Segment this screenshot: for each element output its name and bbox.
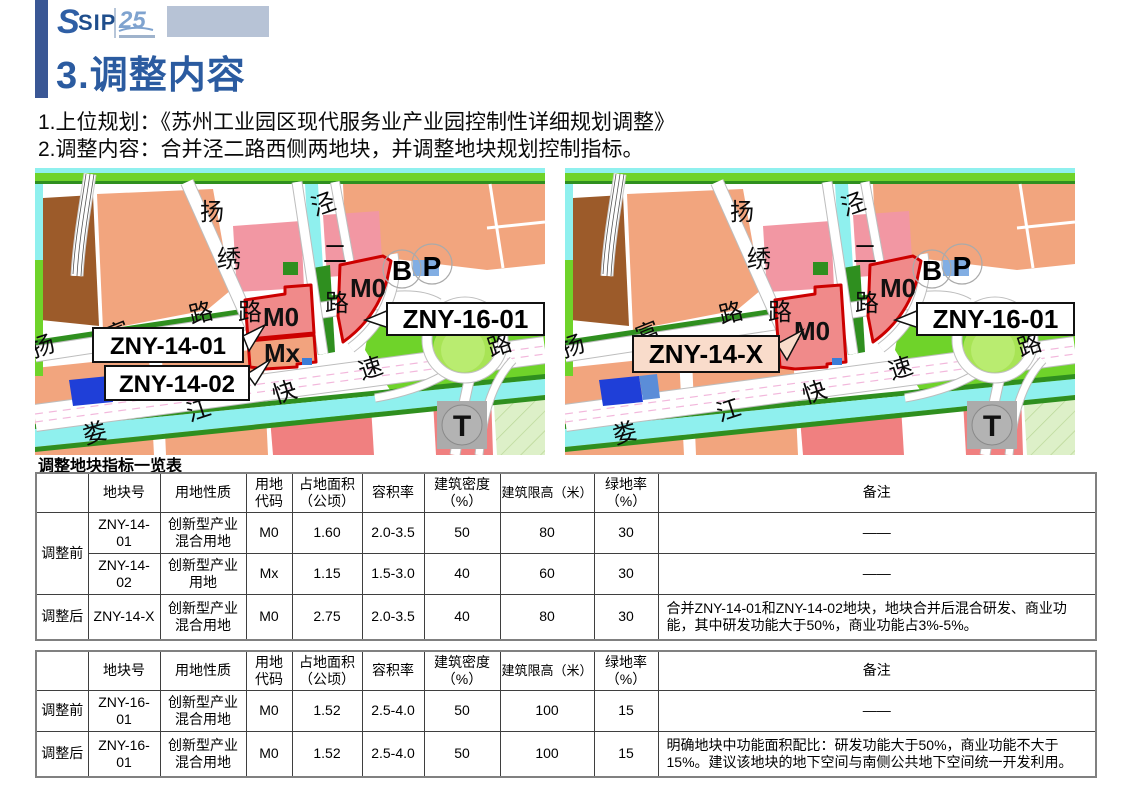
map-callout-ZNY-16-01: ZNY-16-01 <box>895 303 1074 335</box>
svg-text:ZNY-16-01: ZNY-16-01 <box>933 304 1059 334</box>
svg-text:ZNY-14-02: ZNY-14-02 <box>119 371 235 398</box>
parking-icon: P <box>953 251 972 282</box>
data-cell: 1.52 <box>292 691 362 732</box>
road-label-char: 路 <box>238 299 262 326</box>
data-cell: 创新型产业混合用地 <box>160 595 246 641</box>
column-header: 建筑限高（米） <box>500 473 594 513</box>
data-cell: 30 <box>594 554 658 595</box>
sip-swoosh-icon: S <box>57 3 80 41</box>
data-cell: 50 <box>424 691 500 732</box>
column-header: 占地面积（公顷） <box>292 473 362 513</box>
road-label-char: 扬 <box>730 199 754 226</box>
table-row: 调整前ZNY-16-01创新型产业混合用地M01.522.5-4.0501001… <box>36 691 1096 732</box>
svg-text:ZNY-14-X: ZNY-14-X <box>649 339 764 369</box>
indicator-table-zny14: 地块号用地性质用地代码占地面积（公顷）容积率建筑密度（%）建筑限高（米）绿地率（… <box>35 472 1097 641</box>
road-label-char: 绣 <box>747 246 771 273</box>
data-cell: 60 <box>500 554 594 595</box>
table-row: 调整后ZNY-16-01创新型产业混合用地M01.522.5-4.0501001… <box>36 732 1096 778</box>
data-cell: 2.75 <box>292 595 362 641</box>
road-label-char: 二 <box>853 241 877 268</box>
column-header: 地块号 <box>88 651 160 691</box>
road-label-char: 绣 <box>217 246 241 273</box>
data-cell: 50 <box>424 513 500 554</box>
column-header: 地块号 <box>88 473 160 513</box>
data-cell: 1.60 <box>292 513 362 554</box>
plot-label-mx: Mx <box>264 338 301 368</box>
data-cell: 创新型产业用地 <box>160 554 246 595</box>
data-cell: 100 <box>500 691 594 732</box>
data-cell: —— <box>658 554 1096 595</box>
blue-plot <box>599 376 643 406</box>
bus-stop-icon: B <box>922 255 942 286</box>
data-cell: 2.5-4.0 <box>362 691 424 732</box>
data-cell: 2.0-3.5 <box>362 513 424 554</box>
page-title: 3.调整内容 <box>56 44 246 99</box>
column-header: 备注 <box>658 473 1096 513</box>
slide-page: S SIP 25 3.调整内容 1.上位规划：《苏州工业园区现代服务业产业园控制… <box>0 0 1123 794</box>
transit-marker: T <box>437 401 487 449</box>
road-label-char: 二 <box>323 241 347 268</box>
transit-marker: T <box>967 401 1017 449</box>
plot-label-m0-16: M0 <box>880 273 916 303</box>
data-cell: ZNY-16-01 <box>88 691 160 732</box>
table-row: 调整前ZNY-14-01创新型产业混合用地M01.602.0-3.5508030… <box>36 513 1096 554</box>
data-cell: 40 <box>424 595 500 641</box>
data-cell: 1.52 <box>292 732 362 778</box>
map-before-adjustment: BPT扬富路扬绣路泾二路娄江快速路M0MxM0ZNY-14-01ZNY-14-0… <box>35 168 545 455</box>
data-cell: 30 <box>594 513 658 554</box>
data-cell: 合并ZNY-14-01和ZNY-14-02地块，地块合并后混合研发、商业功能，其… <box>658 595 1096 641</box>
data-cell: 2.5-4.0 <box>362 732 424 778</box>
header-row: 地块号用地性质用地代码占地面积（公顷）容积率建筑密度（%）建筑限高（米）绿地率（… <box>36 473 1096 513</box>
road-label-char: 路 <box>855 290 879 317</box>
intro-line-1: 1.上位规划：《苏州工业园区现代服务业产业园控制性详细规划调整》 <box>38 109 675 136</box>
indicator-table-zny16: 地块号用地性质用地代码占地面积（公顷）容积率建筑密度（%）建筑限高（米）绿地率（… <box>35 650 1097 778</box>
data-cell: ZNY-16-01 <box>88 732 160 778</box>
svg-text:ZNY-14-01: ZNY-14-01 <box>110 333 226 360</box>
table-row: 调整后ZNY-14-X创新型产业混合用地M02.752.0-3.5408030合… <box>36 595 1096 641</box>
intro-text: 1.上位规划：《苏州工业园区现代服务业产业园控制性详细规划调整》 2.调整内容：… <box>38 109 675 163</box>
bus-stop-icon: B <box>392 255 412 286</box>
data-cell: 50 <box>424 732 500 778</box>
stage-cell: 调整后 <box>36 595 88 641</box>
plot-label-m0: M0 <box>794 316 830 346</box>
data-cell: Mx <box>246 554 292 595</box>
data-cell: —— <box>658 691 1096 732</box>
data-cell: 1.15 <box>292 554 362 595</box>
sip-logo: S SIP 25 <box>55 0 275 46</box>
column-header: 用地代码 <box>246 651 292 691</box>
column-header: 用地性质 <box>160 651 246 691</box>
column-header: 建筑密度（%） <box>424 651 500 691</box>
logo-block <box>167 6 269 37</box>
data-cell: 100 <box>500 732 594 778</box>
road-label-char: 路 <box>325 290 349 317</box>
data-cell: 创新型产业混合用地 <box>160 691 246 732</box>
data-cell: M0 <box>246 732 292 778</box>
column-header: 占地面积（公顷） <box>292 651 362 691</box>
data-cell: 15 <box>594 732 658 778</box>
data-cell: 40 <box>424 554 500 595</box>
data-cell: —— <box>658 513 1096 554</box>
road-label-char: 路 <box>768 299 792 326</box>
column-header: 容积率 <box>362 651 424 691</box>
data-cell: 15 <box>594 691 658 732</box>
accent-bar <box>35 0 48 98</box>
data-cell: M0 <box>246 513 292 554</box>
column-header <box>36 473 88 513</box>
column-header: 用地代码 <box>246 473 292 513</box>
column-header: 建筑限高（米） <box>500 651 594 691</box>
stage-cell: 调整前 <box>36 691 88 732</box>
planning-map-after: BPT扬富路扬绣路泾二路娄江快速路M0M0ZNY-14-XZNY-16-01 <box>565 168 1075 455</box>
road-label-char: 扬 <box>200 199 224 226</box>
map-callout-ZNY-14-02: ZNY-14-02 <box>105 359 271 400</box>
intro-line-2: 2.调整内容：合并泾二路西侧两地块，并调整地块规划控制指标。 <box>38 136 675 163</box>
data-cell: 30 <box>594 595 658 641</box>
data-cell: 1.5-3.0 <box>362 554 424 595</box>
column-header: 绿地率（%） <box>594 651 658 691</box>
column-header: 容积率 <box>362 473 424 513</box>
parking-icon: P <box>423 251 442 282</box>
data-cell: 创新型产业混合用地 <box>160 513 246 554</box>
sip-logo-icon: S SIP 25 <box>55 0 275 46</box>
map-callout-ZNY-16-01: ZNY-16-01 <box>365 303 544 335</box>
transit-icon: T <box>453 410 471 443</box>
data-cell: M0 <box>246 595 292 641</box>
data-cell: 创新型产业混合用地 <box>160 732 246 778</box>
table-row: ZNY-14-02创新型产业用地Mx1.151.5-3.0406030—— <box>36 554 1096 595</box>
map-callout-ZNY-14-X: ZNY-14-X <box>633 330 803 372</box>
planning-map-before: BPT扬富路扬绣路泾二路娄江快速路M0MxM0ZNY-14-01ZNY-14-0… <box>35 168 545 455</box>
stage-cell: 调整后 <box>36 732 88 778</box>
column-header: 建筑密度（%） <box>424 473 500 513</box>
plot-label-m0: M0 <box>263 302 299 332</box>
map-after-adjustment: BPT扬富路扬绣路泾二路娄江快速路M0M0ZNY-14-XZNY-16-01 <box>565 168 1075 455</box>
svg-text:ZNY-16-01: ZNY-16-01 <box>403 304 529 334</box>
map-callout-ZNY-14-01: ZNY-14-01 <box>93 325 265 362</box>
transit-icon: T <box>983 410 1001 443</box>
data-cell: 80 <box>500 595 594 641</box>
column-header <box>36 651 88 691</box>
data-cell: 明确地块中功能面积配比：研发功能大于50%，商业功能不大于15%。建议该地块的地… <box>658 732 1096 778</box>
data-cell: ZNY-14-01 <box>88 513 160 554</box>
data-cell: 80 <box>500 513 594 554</box>
data-cell: 2.0-3.5 <box>362 595 424 641</box>
column-header: 绿地率（%） <box>594 473 658 513</box>
column-header: 用地性质 <box>160 473 246 513</box>
header-row: 地块号用地性质用地代码占地面积（公顷）容积率建筑密度（%）建筑限高（米）绿地率（… <box>36 651 1096 691</box>
sip-text: SIP <box>78 10 116 35</box>
data-cell: ZNY-14-X <box>88 595 160 641</box>
data-cell: ZNY-14-02 <box>88 554 160 595</box>
data-cell: M0 <box>246 691 292 732</box>
column-header: 备注 <box>658 651 1096 691</box>
plot-label-m0-16: M0 <box>350 273 386 303</box>
stage-cell: 调整前 <box>36 513 88 595</box>
